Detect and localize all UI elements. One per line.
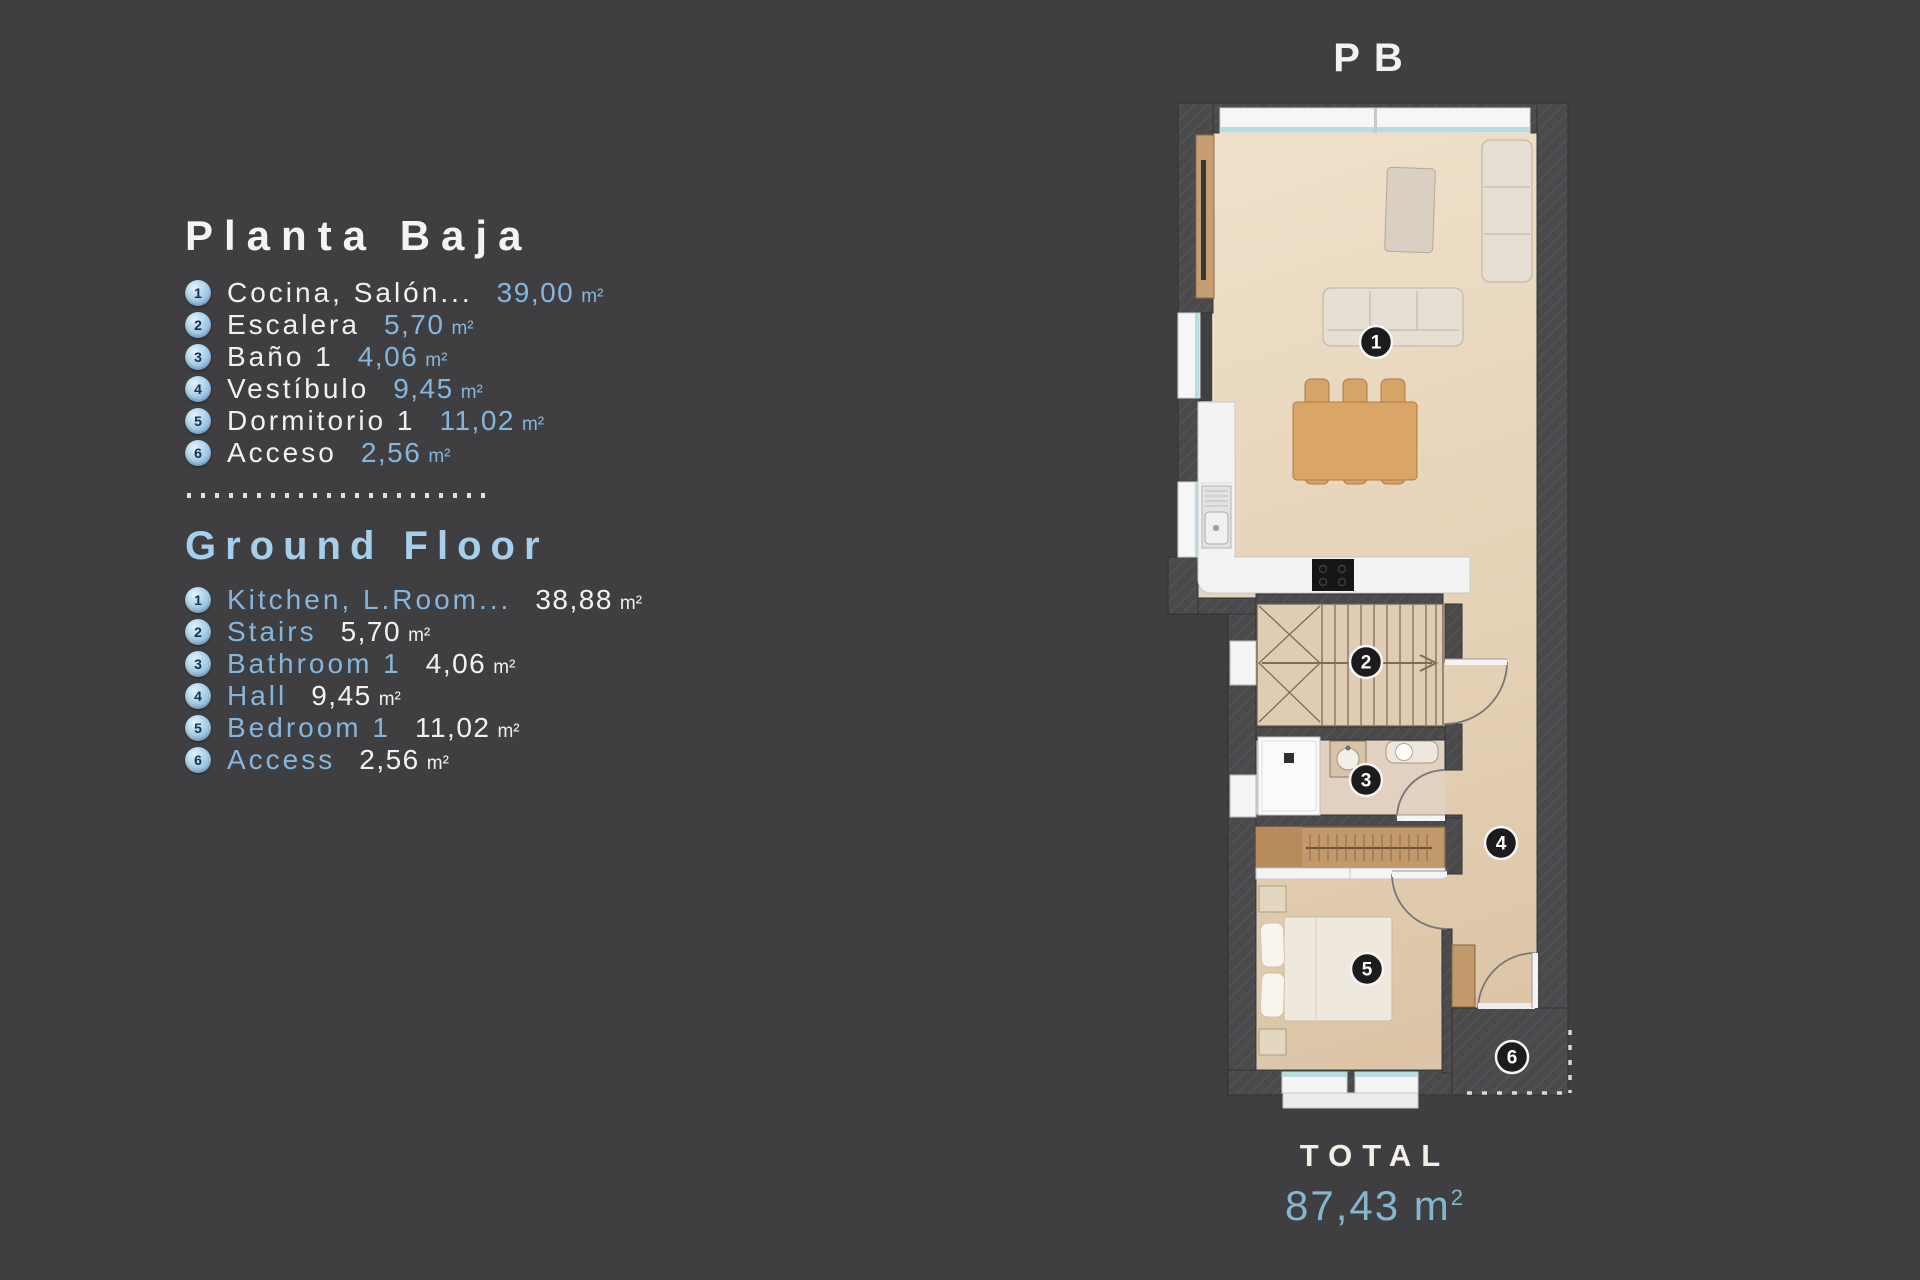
legend-items-spanish: 1Cocina, Salón...39,00m²2Escalera5,70m²3… — [185, 278, 785, 467]
legend-item: 2Stairs5,70m² — [185, 617, 785, 646]
item-number-badge: 3 — [185, 344, 211, 370]
item-number-badge: 4 — [185, 683, 211, 709]
l-sofa — [1482, 140, 1532, 282]
plan-marker: 3 — [1350, 764, 1382, 796]
legend-item: 4Hall9,45m² — [185, 681, 785, 710]
room-area: 2,56 — [359, 744, 420, 775]
armchair — [1385, 167, 1436, 253]
room-area-unit: m² — [497, 721, 519, 742]
room-name: Access — [227, 744, 335, 775]
room-area-unit: m² — [427, 753, 449, 774]
legend-item: 6Access2,56m² — [185, 745, 785, 774]
room-area-unit: m² — [451, 318, 473, 339]
legend-item: 5Bedroom 111,02m² — [185, 713, 785, 742]
item-number-badge: 4 — [185, 376, 211, 402]
shower — [1258, 737, 1320, 815]
room-area-unit: m² — [428, 446, 450, 467]
room-area-unit: m² — [522, 414, 544, 435]
floorplan-svg: 123456 — [1150, 95, 1600, 1110]
legend-item: 6Acceso2,56m² — [185, 438, 785, 467]
legend-item: 4Vestíbulo9,45m² — [185, 374, 785, 403]
item-number-badge: 2 — [185, 619, 211, 645]
legend-item: 5Dormitorio 111,02m² — [185, 406, 785, 435]
room-area: 38,88 — [535, 584, 613, 615]
pillow — [1260, 923, 1285, 968]
room-area: 39,00 — [497, 277, 575, 308]
room-area: 11,02 — [439, 405, 515, 436]
legend-panel: Planta Baja 1Cocina, Salón...39,00m²2Esc… — [185, 212, 785, 777]
room-name: Bathroom 1 — [227, 648, 402, 679]
plan-marker: 2 — [1350, 646, 1382, 678]
svg-text:1: 1 — [1371, 333, 1382, 354]
plan-marker: 4 — [1485, 827, 1517, 859]
room-name: Stairs — [227, 616, 317, 647]
item-number-badge: 6 — [185, 440, 211, 466]
plan-marker: 6 — [1496, 1041, 1528, 1073]
room-name: Vestíbulo — [227, 373, 369, 404]
plan-marker: 5 — [1351, 953, 1383, 985]
room-area: 11,02 — [415, 712, 491, 743]
nightstand — [1259, 1029, 1286, 1055]
plan-marker: 1 — [1360, 326, 1392, 358]
dining-table-group — [1293, 379, 1417, 484]
dining-table — [1293, 402, 1417, 480]
svg-text:3: 3 — [1361, 771, 1372, 792]
room-area-unit: m² — [379, 689, 401, 710]
room-area: 4,06 — [358, 341, 419, 372]
item-number-badge: 3 — [185, 651, 211, 677]
room-name: Escalera — [227, 309, 360, 340]
room-name: Dormitorio 1 — [227, 405, 415, 436]
room-name: Acceso — [227, 437, 337, 468]
legend-item: 2Escalera5,70m² — [185, 310, 785, 339]
legend-section-spanish: Planta Baja 1Cocina, Salón...39,00m²2Esc… — [185, 212, 785, 467]
total-block: TOTAL 87,43 m2 — [1150, 1138, 1600, 1230]
room-area-unit: m² — [581, 286, 603, 307]
svg-text:6: 6 — [1507, 1048, 1518, 1069]
room-name: Kitchen, L.Room... — [227, 584, 511, 615]
item-number-badge: 1 — [185, 280, 211, 306]
cooktop — [1312, 559, 1354, 591]
legend-items-english: 1Kitchen, L.Room...38,88m²2Stairs5,70m²3… — [185, 585, 785, 774]
legend-item: 1Kitchen, L.Room...38,88m² — [185, 585, 785, 614]
room-name: Hall — [227, 680, 287, 711]
total-value: 87,43 m2 — [1150, 1182, 1600, 1230]
sofa — [1323, 288, 1463, 346]
room-area: 5,70 — [341, 616, 402, 647]
room-area-unit: m² — [408, 625, 430, 646]
room-area: 9,45 — [393, 373, 454, 404]
room-name: Cocina, Salón... — [227, 277, 473, 308]
legend-title-spanish: Planta Baja — [185, 212, 785, 260]
floor-code-label: PB — [1150, 36, 1600, 81]
room-area-unit: m² — [620, 593, 642, 614]
svg-text:4: 4 — [1496, 834, 1507, 855]
legend-item: 3Baño 14,06m² — [185, 342, 785, 371]
floorplan: 123456 — [1150, 95, 1600, 1110]
console-table — [1452, 945, 1475, 1007]
item-number-badge: 6 — [185, 747, 211, 773]
room-area-unit: m² — [493, 657, 515, 678]
room-area: 2,56 — [361, 437, 422, 468]
room-area-unit: m² — [425, 350, 447, 371]
room-area: 9,45 — [311, 680, 372, 711]
pillow — [1260, 973, 1285, 1018]
room-name: Baño 1 — [227, 341, 334, 372]
nightstand — [1259, 886, 1286, 912]
legend-item: 3Bathroom 14,06m² — [185, 649, 785, 678]
room-area: 5,70 — [384, 309, 445, 340]
room-area: 4,06 — [426, 648, 487, 679]
legend-item: 1Cocina, Salón...39,00m² — [185, 278, 785, 307]
separator-dots — [187, 493, 485, 498]
item-number-badge: 5 — [185, 408, 211, 434]
item-number-badge: 2 — [185, 312, 211, 338]
legend-section-english: Ground Floor 1Kitchen, L.Room...38,88m²2… — [185, 524, 785, 774]
svg-text:2: 2 — [1361, 653, 1372, 674]
total-label: TOTAL — [1150, 1138, 1600, 1174]
room-area-unit: m² — [461, 382, 483, 403]
room-name: Bedroom 1 — [227, 712, 391, 743]
item-number-badge: 5 — [185, 715, 211, 741]
legend-title-english: Ground Floor — [185, 524, 785, 569]
item-number-badge: 1 — [185, 587, 211, 613]
tv-cabinet — [1196, 135, 1214, 298]
svg-text:5: 5 — [1362, 960, 1373, 981]
